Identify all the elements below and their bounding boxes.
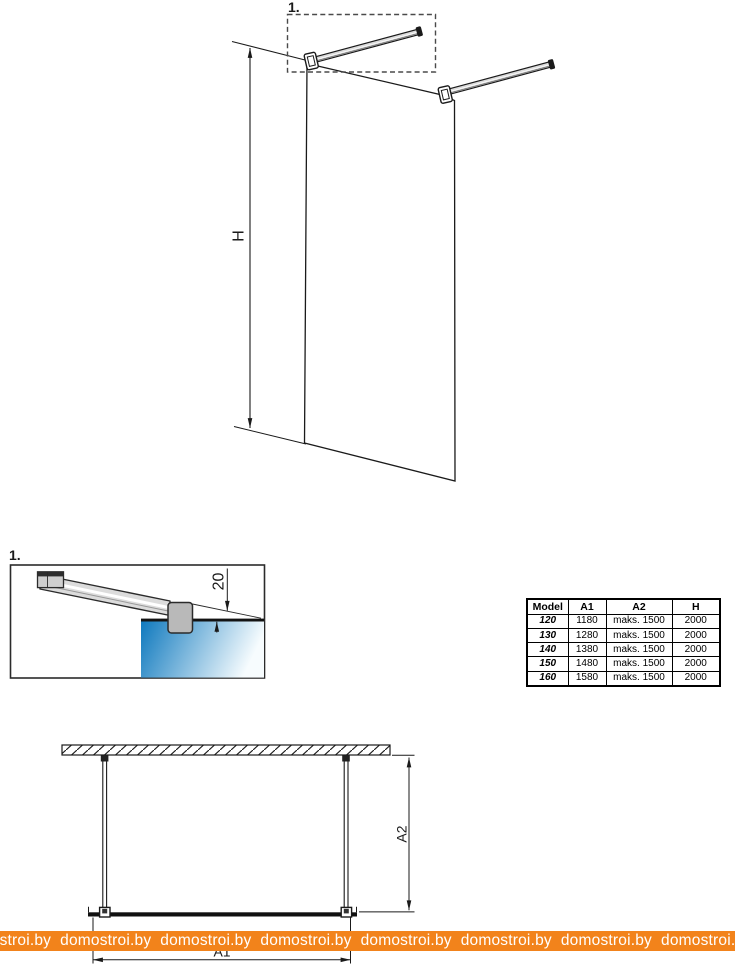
iso-view: H bbox=[231, 0, 556, 481]
col-header-h: H bbox=[672, 599, 720, 614]
table-row: 140 1380 maks. 1500 2000 bbox=[527, 643, 720, 657]
cell-a1: 1280 bbox=[568, 628, 606, 642]
cell-a1: 1380 bbox=[568, 643, 606, 657]
cell-h: 2000 bbox=[672, 628, 720, 642]
plan-glass bbox=[88, 912, 357, 916]
cell-a1: 1480 bbox=[568, 657, 606, 671]
iso-callout-label: 1. bbox=[288, 0, 300, 15]
wall-bar-left bbox=[314, 26, 424, 63]
cell-model: 130 bbox=[527, 628, 568, 642]
cell-model: 140 bbox=[527, 643, 568, 657]
watermark-bar: domostroi.by domostroi.by domostroi.by d… bbox=[0, 931, 735, 951]
detail-view: 1. 20 bbox=[9, 547, 265, 678]
technical-drawing-page: H bbox=[0, 0, 735, 966]
cell-a2: maks. 1500 bbox=[606, 643, 672, 657]
cell-model: 120 bbox=[527, 614, 568, 628]
table-row: 150 1480 maks. 1500 2000 bbox=[527, 657, 720, 671]
cell-h: 2000 bbox=[672, 614, 720, 628]
cell-h: 2000 bbox=[672, 643, 720, 657]
table-header-row: Model A1 A2 H bbox=[527, 599, 720, 614]
table-row: 160 1580 maks. 1500 2000 bbox=[527, 671, 720, 686]
cell-model: 150 bbox=[527, 657, 568, 671]
cell-a2: maks. 1500 bbox=[606, 628, 672, 642]
table-row: 130 1280 maks. 1500 2000 bbox=[527, 628, 720, 642]
cell-a1: 1180 bbox=[568, 614, 606, 628]
table-row: 120 1180 maks. 1500 2000 bbox=[527, 614, 720, 628]
detail-clamp bbox=[168, 603, 193, 634]
cell-a2: maks. 1500 bbox=[606, 614, 672, 628]
col-header-model: Model bbox=[527, 599, 568, 614]
wall-bar-right bbox=[448, 59, 556, 95]
shower-screen-drawing: H bbox=[0, 0, 735, 966]
plan-bar-right bbox=[341, 755, 351, 917]
plan-bar-left bbox=[100, 755, 110, 917]
glass-panel bbox=[305, 64, 456, 482]
cell-model: 160 bbox=[527, 671, 568, 686]
cell-a1: 1580 bbox=[568, 671, 606, 686]
glass-bracket-left bbox=[304, 52, 319, 70]
cell-h: 2000 bbox=[672, 657, 720, 671]
cell-a2: maks. 1500 bbox=[606, 671, 672, 686]
watermark-text: domostroi.by domostroi.by domostroi.by d… bbox=[0, 932, 735, 950]
detail-glass-edge bbox=[141, 619, 264, 622]
col-header-a2: A2 bbox=[606, 599, 672, 614]
cell-h: 2000 bbox=[672, 671, 720, 686]
detail-glass bbox=[141, 621, 264, 677]
offset-dimension-label: 20 bbox=[211, 573, 228, 591]
height-dimension-label: H bbox=[231, 230, 248, 242]
cell-a2: maks. 1500 bbox=[606, 657, 672, 671]
depth-dimension-label: A2 bbox=[394, 825, 410, 842]
col-header-a1: A1 bbox=[568, 599, 606, 614]
spec-table: Model A1 A2 H 120 1180 maks. 1500 2000 1… bbox=[526, 598, 721, 687]
plan-wall bbox=[62, 745, 390, 755]
detail-callout-label: 1. bbox=[9, 547, 21, 563]
